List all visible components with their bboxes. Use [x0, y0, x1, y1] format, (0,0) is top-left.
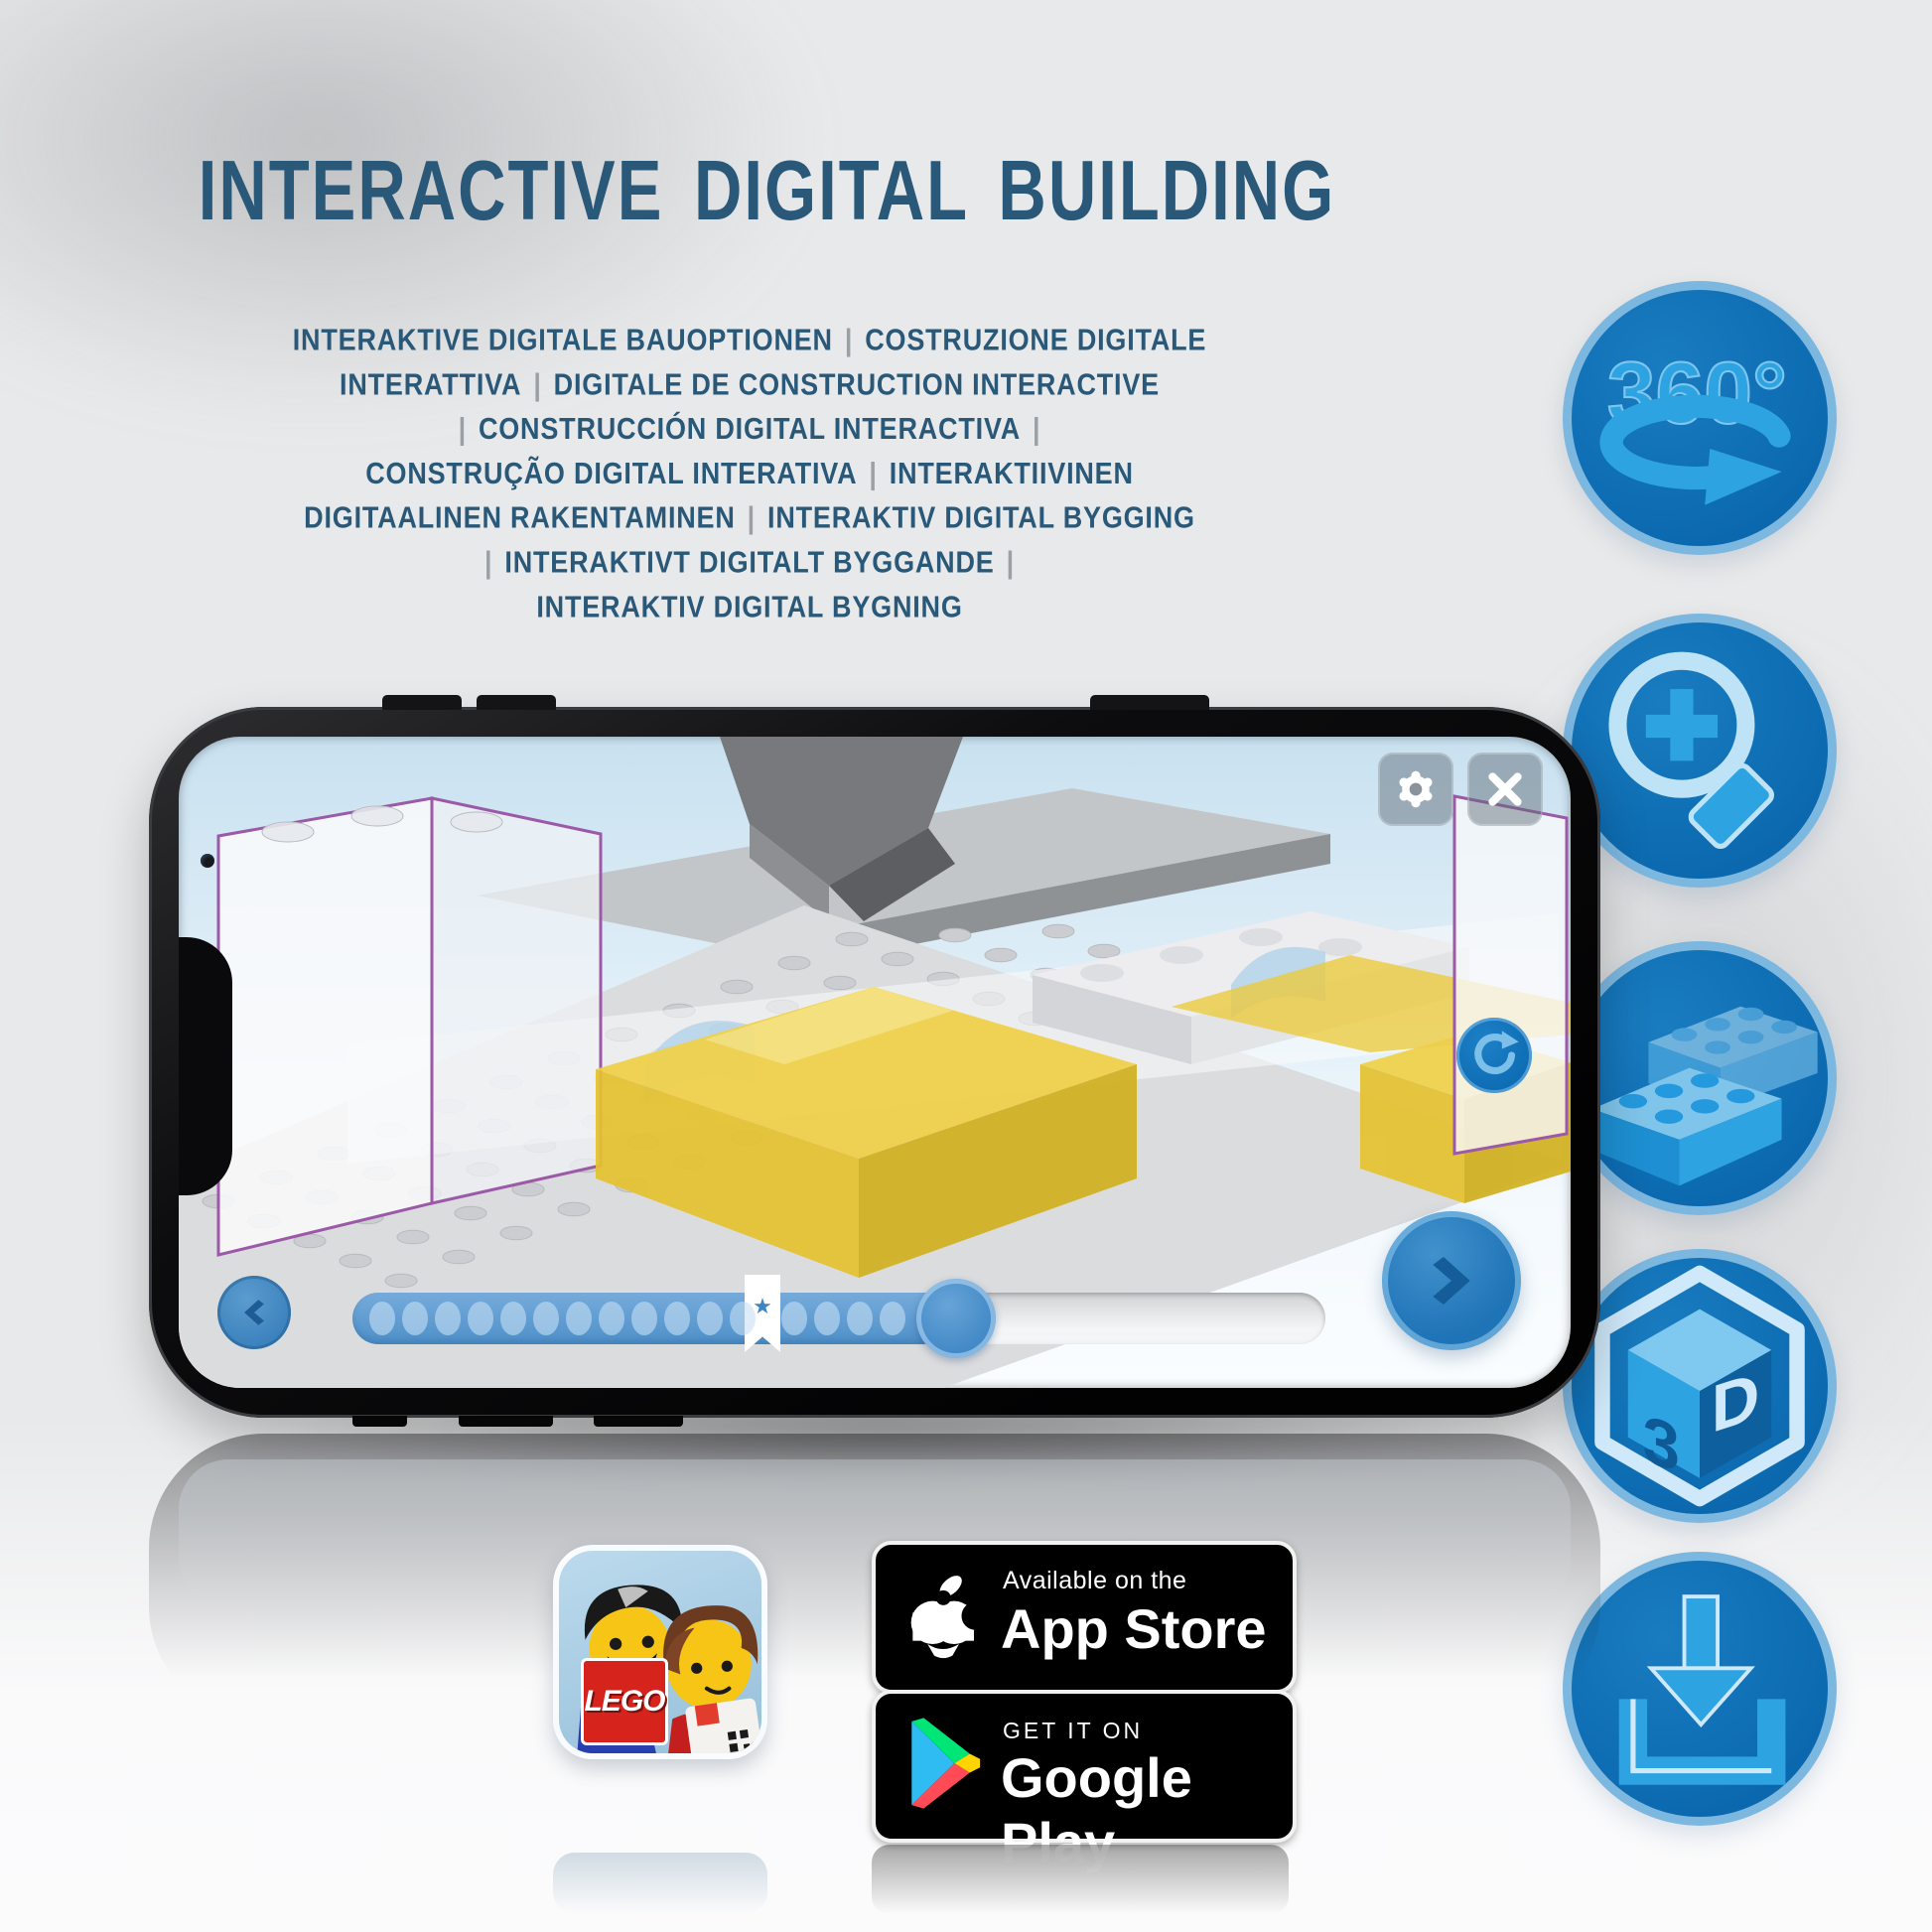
- badge-store-name: App Store: [1001, 1596, 1267, 1661]
- feature-3d-view: 3 D: [1563, 1249, 1837, 1523]
- step-dot: [402, 1302, 428, 1335]
- step-dot: [730, 1302, 756, 1335]
- lego-builder-app-icon: LEGO: [553, 1545, 767, 1759]
- app-icon-reflection: [553, 1853, 767, 1914]
- lego-logo: LEGO: [581, 1658, 668, 1745]
- close-icon: [1481, 766, 1529, 812]
- settings-button[interactable]: [1378, 753, 1453, 826]
- sim-tray: [352, 1416, 407, 1427]
- badge-reflection: [872, 1845, 1289, 1914]
- step-dot: [631, 1302, 657, 1335]
- feature-brick: [1563, 941, 1837, 1215]
- circular-arrow-icon: [1468, 1030, 1520, 1081]
- feature-download: [1563, 1552, 1837, 1826]
- step-dot: [847, 1302, 873, 1335]
- brick-icon: [1572, 950, 1828, 1206]
- step-dot: [697, 1302, 723, 1335]
- subtitle-line: |INTERAKTIVT DIGITALT BYGGANDE|: [149, 540, 1350, 585]
- apple-icon: [901, 1565, 987, 1664]
- speaker-grille: [459, 1416, 553, 1427]
- progress-fill: ★: [352, 1293, 976, 1344]
- front-camera: [201, 854, 214, 868]
- subtitle-line: CONSTRUÇÃO DIGITAL INTERATIVA|INTERAKTII…: [149, 451, 1350, 495]
- page-title: INTERACTIVE DIGITAL BUILDING: [0, 142, 1534, 240]
- subtitle-line: INTERAKTIVE DIGITALE BAUOPTIONEN|COSTRUZ…: [149, 318, 1350, 362]
- step-dot: [435, 1302, 461, 1335]
- zoom-in-icon: [1572, 622, 1828, 879]
- badge-tagline: Available on the: [1003, 1567, 1186, 1595]
- app-store-badge[interactable]: Available on the App Store: [872, 1541, 1297, 1694]
- volume-down-button: [477, 695, 556, 710]
- volume-up-button: [382, 695, 462, 710]
- step-dot: [599, 1302, 624, 1335]
- svg-text:D: D: [1712, 1357, 1759, 1448]
- feature-360-rotation: 360°: [1563, 281, 1837, 555]
- step-dot: [533, 1302, 559, 1335]
- google-play-badge[interactable]: GET IT ON Google Play: [872, 1690, 1297, 1843]
- gear-icon: [1392, 766, 1440, 812]
- subtitle-block: INTERAKTIVE DIGITALE BAUOPTIONEN|COSTRUZ…: [149, 318, 1350, 629]
- poster-background: INTERACTIVE DIGITAL BUILDING INTERAKTIVE…: [0, 0, 1932, 1932]
- step-dot: [468, 1302, 493, 1335]
- slider-knob[interactable]: [916, 1279, 996, 1358]
- feature-zoom: [1563, 614, 1837, 888]
- step-dot: [369, 1302, 395, 1335]
- phone-notch: [179, 937, 232, 1195]
- speaker-grille: [594, 1416, 683, 1427]
- close-button[interactable]: [1467, 753, 1543, 826]
- phone-mockup: ★: [149, 707, 1600, 1418]
- svg-text:3: 3: [1643, 1400, 1680, 1486]
- lego-3d-scene[interactable]: [179, 737, 1571, 1388]
- subtitle-line: |CONSTRUCCIÓN DIGITAL INTERACTIVA|: [149, 407, 1350, 452]
- chevron-right-icon: [1420, 1249, 1483, 1312]
- download-icon: [1572, 1561, 1828, 1817]
- subtitle-line: DIGITAALINEN RAKENTAMINEN|INTERAKTIV DIG…: [149, 495, 1350, 540]
- rotate-360-icon: 360°: [1572, 290, 1828, 546]
- app-screen: ★: [179, 737, 1571, 1388]
- 3d-cube-icon: 3 D: [1572, 1258, 1828, 1514]
- chevron-left-icon: [237, 1296, 271, 1329]
- subtitle-line: INTERAKTIV DIGITAL BYGNING: [149, 585, 1350, 629]
- build-progress-slider[interactable]: ★: [352, 1293, 1325, 1344]
- previous-step-button[interactable]: [217, 1276, 291, 1349]
- step-dot: [664, 1302, 690, 1335]
- subtitle-line: INTERATTIVA|DIGITALE DE CONSTRUCTION INT…: [149, 362, 1350, 407]
- step-dot: [781, 1302, 807, 1335]
- step-dot: [880, 1302, 905, 1335]
- step-dot: [500, 1302, 526, 1335]
- badge-tagline: GET IT ON: [1003, 1718, 1143, 1744]
- step-dot: [566, 1302, 592, 1335]
- step-dot: [814, 1302, 840, 1335]
- power-button: [1090, 695, 1209, 710]
- reset-rotation-button[interactable]: [1456, 1018, 1532, 1093]
- next-step-button[interactable]: [1382, 1211, 1521, 1350]
- google-play-icon: [901, 1714, 987, 1813]
